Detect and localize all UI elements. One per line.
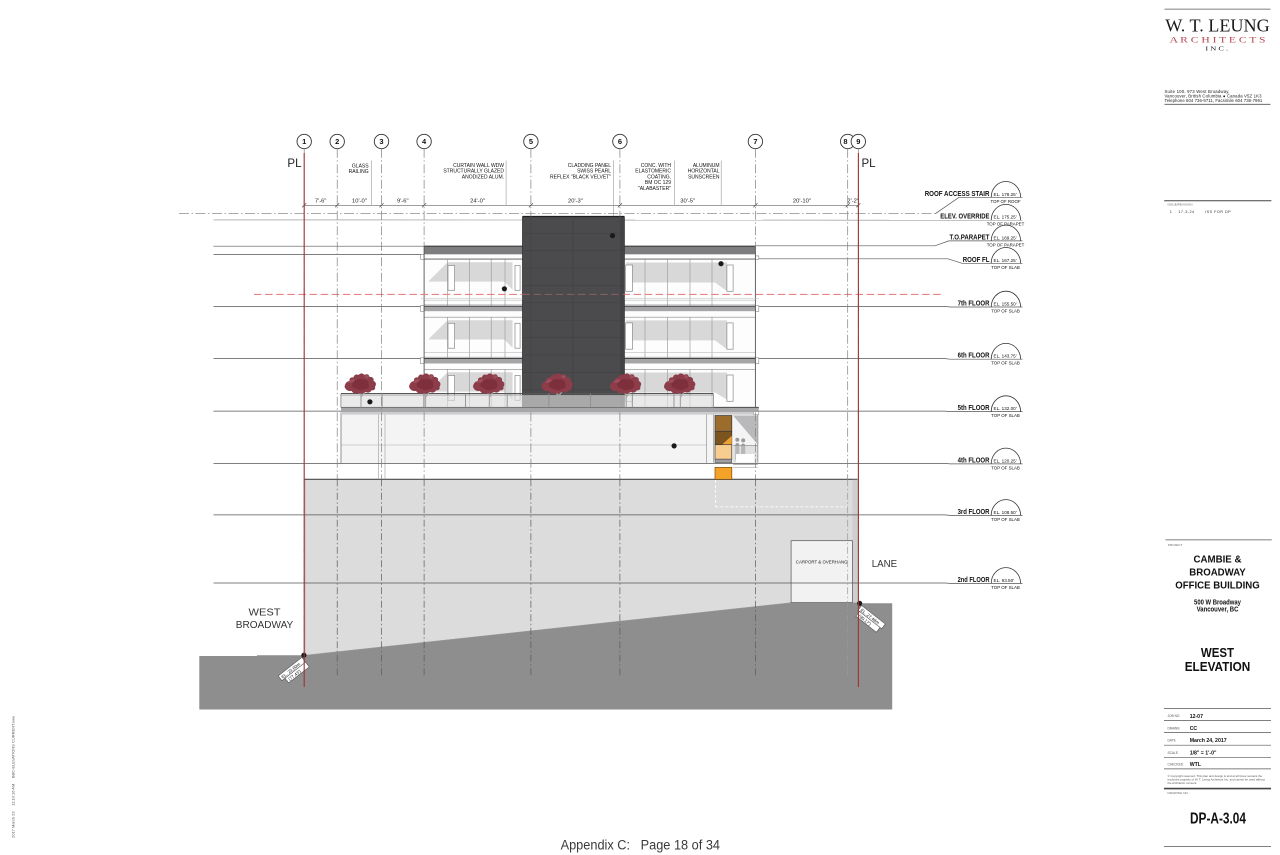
svg-text:3rd FLOOR: 3rd FLOOR [958, 509, 990, 516]
svg-text:RAILING: RAILING [349, 169, 369, 175]
svg-text:BROADWAY: BROADWAY [1189, 568, 1246, 579]
svg-text:ANODIZED ALUM.: ANODIZED ALUM. [462, 174, 504, 180]
svg-text:CAMBIE &: CAMBIE & [1193, 555, 1241, 566]
svg-text:DP-A-3.04: DP-A-3.04 [1190, 811, 1246, 828]
svg-text:the Architects' consent.: the Architects' consent. [1168, 781, 1198, 785]
svg-text:EL. 155.50': EL. 155.50' [994, 302, 1017, 307]
svg-text:7: 7 [753, 137, 757, 146]
svg-text:7th FLOOR: 7th FLOOR [958, 301, 990, 308]
svg-text:1 17-3-24 ISS FOR DP: 1 17-3-24 ISS FOR DP [1170, 210, 1231, 214]
svg-text:A R C H I T E C T S: A R C H I T E C T S [1170, 35, 1266, 44]
svg-text:TOP OF SLAB: TOP OF SLAB [991, 309, 1020, 314]
svg-text:WEST: WEST [249, 607, 282, 619]
svg-text:10'-0": 10'-0" [352, 198, 367, 204]
svg-text:3: 3 [379, 137, 383, 146]
svg-text:5: 5 [529, 137, 533, 146]
svg-text:Telephone 604 736-9711, Facsim: Telephone 604 736-9711, Facsimile 604 73… [1165, 98, 1263, 103]
svg-text:SUNSCREEN: SUNSCREEN [688, 174, 720, 180]
svg-text:9'-6": 9'-6" [397, 198, 409, 204]
svg-text:4th FLOOR: 4th FLOOR [958, 457, 990, 464]
svg-text:30'-5": 30'-5" [680, 198, 695, 204]
svg-text:8: 8 [843, 137, 847, 146]
svg-text:2'-2": 2'-2" [847, 198, 859, 204]
svg-text:TOP OF SLAB: TOP OF SLAB [991, 465, 1020, 470]
svg-text:EL. 108.50': EL. 108.50' [994, 510, 1017, 515]
svg-text:JOB NO.: JOB NO. [1168, 714, 1181, 718]
svg-text:24'-0": 24'-0" [470, 198, 485, 204]
svg-text:DATE: DATE [1168, 739, 1176, 743]
svg-text:TOP OF SLAB: TOP OF SLAB [991, 517, 1020, 522]
svg-text:1/8" = 1'-0": 1/8" = 1'-0" [1190, 750, 1217, 756]
svg-text:9: 9 [856, 137, 860, 146]
svg-text:CHECKED: CHECKED [1168, 763, 1184, 767]
svg-text:EL. 93.50': EL. 93.50' [994, 578, 1015, 583]
svg-text:ELEVATION: ELEVATION [1185, 659, 1251, 674]
svg-text:12-07: 12-07 [1190, 714, 1203, 720]
svg-text:PROJECT: PROJECT [1168, 543, 1183, 547]
svg-text:EL. 167.25': EL. 167.25' [994, 258, 1017, 263]
svg-text:2: 2 [335, 137, 339, 146]
svg-text:TOP OF SLAB: TOP OF SLAB [991, 361, 1020, 366]
svg-text:SCALE: SCALE [1168, 751, 1178, 755]
svg-text:TOP OF PARAPET: TOP OF PARAPET [987, 222, 1025, 227]
svg-text:DRAWING NO. :: DRAWING NO. : [1168, 791, 1191, 795]
svg-text:5th FLOOR: 5th FLOOR [958, 405, 990, 412]
svg-text:6th FLOOR: 6th FLOOR [958, 353, 990, 360]
svg-text:WTL: WTL [1190, 762, 1202, 768]
svg-text:6: 6 [618, 137, 622, 146]
svg-text:REFLEX "BLACK VELVET": REFLEX "BLACK VELVET" [550, 174, 611, 180]
svg-text:ROOF ACCESS STAIR: ROOF ACCESS STAIR [925, 191, 990, 198]
svg-text:EL. 175.25': EL. 175.25' [994, 215, 1017, 220]
svg-text:WEST: WEST [1201, 645, 1234, 660]
svg-text:ROOF FL: ROOF FL [963, 257, 990, 264]
svg-text:Appendix C: Page 18 of 34: Appendix C: Page 18 of 34 [561, 837, 720, 853]
svg-text:OFFICE BUILDING: OFFICE BUILDING [1175, 581, 1260, 592]
svg-text:T.O.PARAPET: T.O.PARAPET [950, 234, 991, 241]
svg-text:BROADWAY: BROADWAY [236, 619, 294, 631]
svg-text:CC: CC [1190, 726, 1198, 732]
svg-text:LANE: LANE [872, 558, 897, 570]
svg-text:2nd FLOOR: 2nd FLOOR [958, 577, 990, 584]
svg-text:CARPORT & OVERHANG: CARPORT & OVERHANG [796, 560, 848, 565]
svg-text:TOP OF ROOF: TOP OF ROOF [990, 199, 1020, 204]
svg-text:PL: PL [862, 158, 877, 170]
svg-text:"ALABASTER": "ALABASTER" [638, 186, 671, 192]
svg-text:TOP OF SLAB: TOP OF SLAB [991, 413, 1020, 418]
svg-text:PL: PL [287, 158, 302, 170]
svg-text:W. T. LEUNG: W. T. LEUNG [1165, 15, 1270, 35]
svg-text:Vancouver, BC: Vancouver, BC [1197, 604, 1239, 613]
svg-text:7'-6": 7'-6" [315, 198, 327, 204]
svg-text:20'-10": 20'-10" [793, 198, 811, 204]
svg-text:TOP OF SLAB: TOP OF SLAB [991, 585, 1020, 590]
svg-text:March 24, 2017: March 24, 2017 [1190, 738, 1227, 744]
svg-text:EL. 120.25': EL. 120.25' [994, 458, 1017, 463]
svg-text:ELEV. OVERRIDE: ELEV. OVERRIDE [940, 214, 989, 221]
svg-text:20'-3": 20'-3" [568, 198, 583, 204]
svg-text:ISSUE/REVISION: ISSUE/REVISION [1168, 203, 1193, 207]
svg-text:DRAWN: DRAWN [1168, 726, 1181, 730]
svg-text:TOP OF SLAB: TOP OF SLAB [991, 265, 1020, 270]
svg-text:I N C .: I N C . [1205, 45, 1228, 52]
svg-text:EL. 143.75': EL. 143.75' [994, 354, 1017, 359]
svg-text:EL. 178.25': EL. 178.25' [994, 192, 1017, 197]
svg-text:EL. 169.25': EL. 169.25' [994, 235, 1017, 240]
svg-text:EL. 132.00': EL. 132.00' [994, 406, 1017, 411]
svg-text:TOP OF PARAPET: TOP OF PARAPET [987, 242, 1025, 247]
svg-text:2017 March 23 11:10:16 AM: 2017 March 23 11:10:16 AM BBC-ELEVATIONS… [12, 716, 16, 838]
svg-text:1: 1 [302, 137, 306, 146]
